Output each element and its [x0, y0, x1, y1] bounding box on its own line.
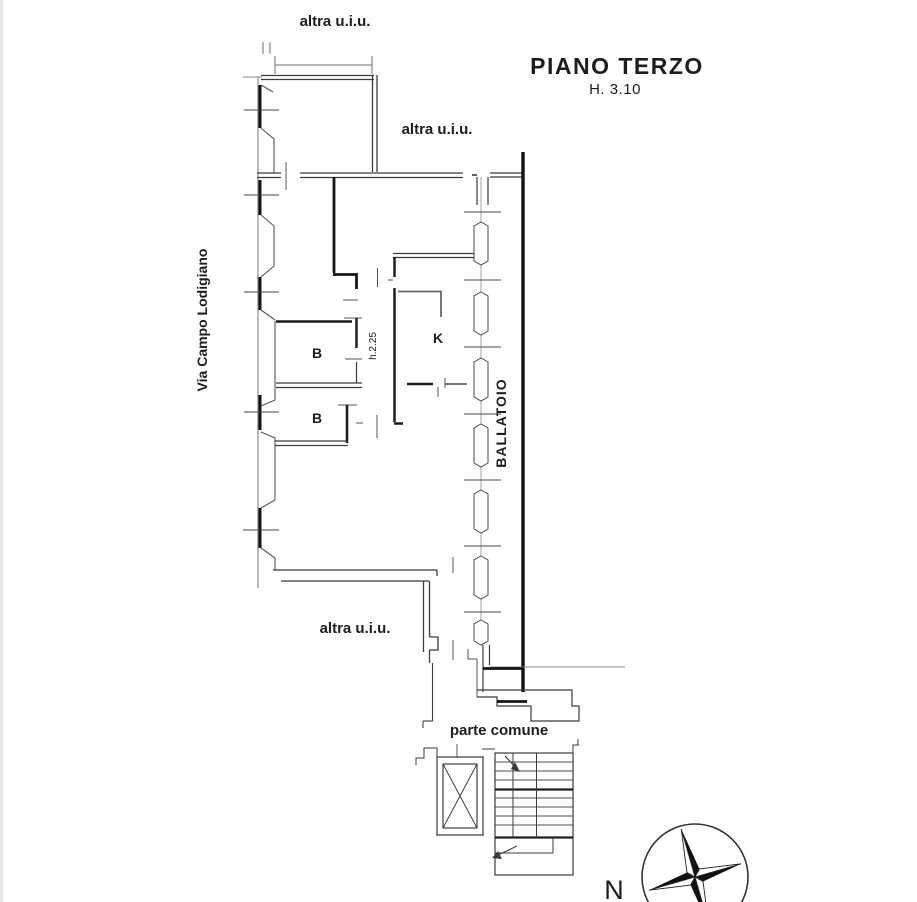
ceiling-height-note: h.2.25 — [368, 332, 379, 360]
stair-treads — [495, 762, 573, 825]
other-unit-label-middle: altra u.i.u. — [402, 121, 473, 138]
floor-plan-drawing: PIANO TERZO H. 3.10 altra u.i.u. altra u… — [0, 0, 917, 902]
room-label-bath-2: B — [312, 410, 322, 426]
compass-north-label: N — [604, 875, 624, 902]
common-area-label: parte comune — [450, 722, 548, 739]
street-label: Via Campo Lodigiano — [194, 249, 210, 392]
compass-rose — [635, 816, 755, 902]
left-exterior-wall — [243, 77, 279, 588]
upper-unit-walls — [243, 75, 377, 172]
other-unit-label-top: altra u.i.u. — [300, 13, 371, 30]
hall-door-marks — [343, 268, 378, 300]
other-unit-label-bottom: altra u.i.u. — [320, 620, 391, 637]
floor-plan-sheet: PIANO TERZO H. 3.10 altra u.i.u. altra u… — [0, 0, 917, 902]
room-label-kitchen: K — [433, 330, 443, 346]
gallery-walls — [490, 152, 625, 692]
labels: PIANO TERZO H. 3.10 altra u.i.u. altra u… — [194, 13, 704, 902]
top-dimension-line — [263, 42, 372, 74]
height-note: H. 3.10 — [589, 81, 641, 98]
page-title: PIANO TERZO — [530, 53, 704, 79]
interior-spine-wall — [333, 177, 357, 289]
bathroom-2-walls — [275, 405, 377, 446]
lower-unit-walls — [273, 557, 453, 728]
staircase — [482, 739, 579, 875]
room-label-bath-1: B — [312, 345, 322, 361]
gallery-label: BALLATOIO — [493, 378, 509, 467]
main-partition-walls — [257, 162, 523, 190]
elevator — [416, 744, 483, 835]
